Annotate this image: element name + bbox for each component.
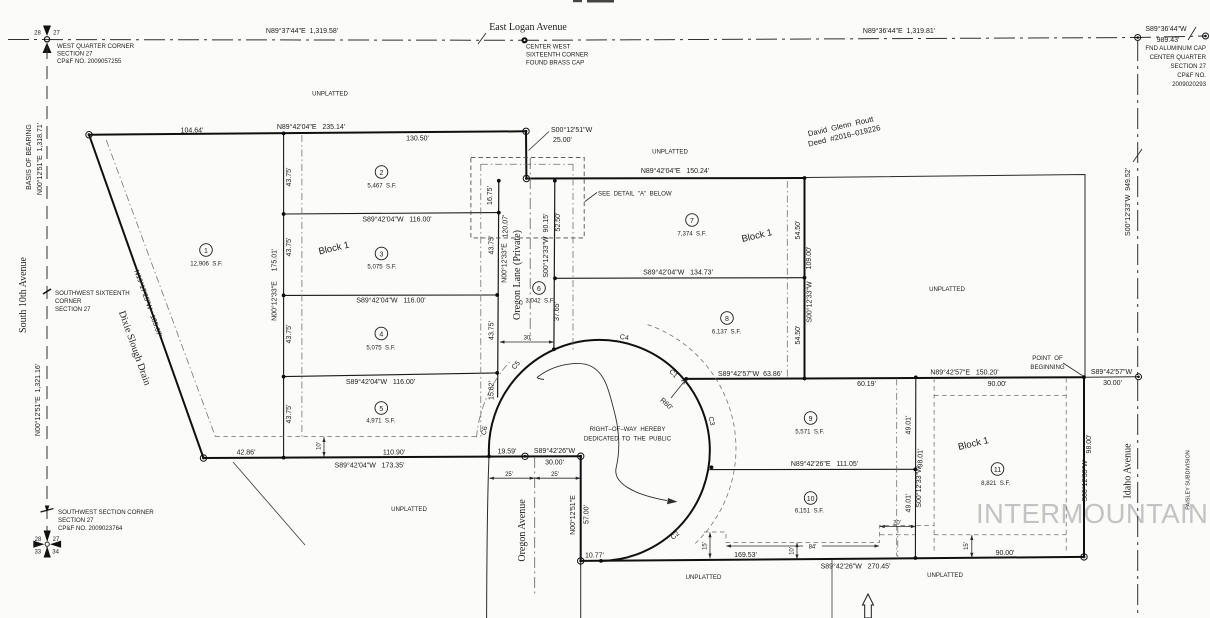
svg-text:25.00': 25.00' [553, 137, 572, 144]
svg-text:CENTER QUARTER: CENTER QUARTER [1150, 54, 1207, 61]
svg-text:CP&F NO. 2009057255: CP&F NO. 2009057255 [57, 58, 122, 65]
svg-text:7: 7 [690, 218, 694, 225]
svg-text:52.50': 52.50' [555, 213, 562, 232]
svg-text:30.00': 30.00' [545, 460, 564, 467]
svg-text:SECTION 27: SECTION 27 [55, 306, 91, 313]
svg-text:UNPLATTED: UNPLATTED [391, 506, 427, 513]
svg-text:27: 27 [53, 31, 60, 37]
svg-text:5,467 S.F.: 5,467 S.F. [367, 183, 396, 190]
svg-text:N00°12'51"E 1,318.71': N00°12'51"E 1,318.71' [36, 123, 44, 195]
svg-text:RIGHT–OF–WAY HEREBY: RIGHT–OF–WAY HEREBY [590, 426, 666, 433]
svg-text:15': 15' [703, 542, 709, 550]
svg-text:S89°42'04"W 116.00': S89°42'04"W 116.00' [356, 297, 425, 305]
svg-text:INTERMOUNTAIN: INTERMOUNTAIN [976, 498, 1208, 529]
svg-text:WEST QUARTER CORNER: WEST QUARTER CORNER [57, 43, 135, 50]
svg-text:54.50': 54.50' [795, 326, 802, 345]
svg-text:33: 33 [34, 550, 41, 556]
svg-text:43.75': 43.75' [489, 236, 496, 255]
svg-text:90.15': 90.15' [543, 214, 550, 233]
svg-text:BASIS OF BEARING: BASIS OF BEARING [26, 124, 33, 190]
svg-text:N00°12'33"E: N00°12'33"E [501, 243, 509, 283]
svg-text:C4: C4 [619, 334, 629, 342]
svg-text:120.07': 120.07' [503, 215, 510, 238]
svg-text:4: 4 [379, 331, 383, 338]
svg-text:130.50': 130.50' [406, 136, 429, 143]
svg-text:25': 25' [505, 472, 513, 478]
svg-text:S89°42'26"W 270.45': S89°42'26"W 270.45' [821, 563, 891, 571]
svg-text:4,971 S.F.: 4,971 S.F. [366, 418, 395, 425]
svg-text:84': 84' [809, 545, 817, 551]
svg-text:10': 10' [790, 547, 796, 555]
svg-text:43.75': 43.75' [286, 238, 293, 257]
svg-text:UNPLATTED: UNPLATTED [927, 572, 963, 579]
svg-text:10: 10 [807, 496, 815, 503]
svg-text:10': 10' [317, 442, 323, 450]
svg-text:CP&F NO.: CP&F NO. [1177, 72, 1206, 79]
svg-text:9: 9 [809, 416, 813, 423]
svg-text:34: 34 [52, 550, 59, 556]
svg-text:37.65': 37.65' [554, 302, 561, 321]
svg-text:S89°42'04"W 173.35': S89°42'04"W 173.35' [335, 462, 405, 470]
svg-text:S00°12'33"W: S00°12'33"W [542, 236, 550, 278]
svg-text:5,571 S.F.: 5,571 S.F. [795, 429, 824, 436]
svg-text:N89°37'44"E 1,319.58': N89°37'44"E 1,319.58' [266, 27, 338, 35]
svg-text:43.75': 43.75' [286, 325, 293, 344]
svg-text:N89°42'04"E 235.14': N89°42'04"E 235.14' [277, 123, 345, 131]
svg-text:Oregon Avenue: Oregon Avenue [517, 499, 528, 562]
svg-text:UNPLATTED: UNPLATTED [652, 149, 688, 156]
svg-text:90.00': 90.00' [988, 381, 1007, 388]
svg-text:6: 6 [537, 286, 541, 293]
svg-text:54.50': 54.50' [795, 221, 802, 240]
svg-text:S89°42'26"W: S89°42'26"W [534, 447, 576, 455]
svg-text:UNPLATTED: UNPLATTED [686, 574, 722, 581]
svg-text:S00°12'33"W: S00°12'33"W [806, 281, 814, 323]
svg-text:169.53': 169.53' [734, 552, 757, 559]
svg-text:25': 25' [551, 472, 559, 478]
svg-text:15.82': 15.82' [489, 381, 496, 400]
svg-text:7,374 S.F.: 7,374 S.F. [677, 231, 706, 238]
svg-text:43.75': 43.75' [286, 168, 293, 187]
svg-text:20': 20' [893, 521, 901, 527]
svg-text:1: 1 [204, 248, 208, 255]
svg-text:S00°12'33"W: S00°12'33"W [915, 466, 923, 508]
svg-text:S89°42'04"W 134.73': S89°42'04"W 134.73' [643, 269, 713, 277]
svg-text:DEDICATED TO THE PUBLIC: DEDICATED TO THE PUBLIC [584, 436, 672, 443]
svg-text:28: 28 [34, 31, 41, 37]
svg-text:SEE DETAIL "A" BELOW: SEE DETAIL "A" BELOW [598, 191, 672, 198]
svg-text:Idaho Avenue: Idaho Avenue [1123, 443, 1134, 499]
svg-text:3: 3 [380, 251, 384, 258]
svg-text:SECTION 27: SECTION 27 [58, 517, 94, 524]
svg-text:S00°12'33"W 949.52': S00°12'33"W 949.52' [1124, 168, 1132, 236]
svg-text:90.00': 90.00' [996, 550, 1015, 557]
svg-text:CORNER: CORNER [55, 298, 82, 305]
svg-text:2: 2 [380, 170, 384, 177]
svg-text:30': 30' [524, 336, 532, 342]
svg-text:60.19': 60.19' [857, 381, 876, 388]
svg-text:2009020293: 2009020293 [1172, 81, 1207, 88]
svg-text:S00°12'33"W: S00°12'33"W [1081, 460, 1089, 502]
svg-text:30.00': 30.00' [1103, 380, 1122, 387]
svg-text:S89°36'44"W: S89°36'44"W [1145, 25, 1187, 33]
svg-text:N89°42'26"E 111.05': N89°42'26"E 111.05' [791, 460, 858, 468]
svg-text:8: 8 [725, 316, 729, 323]
svg-text:27: 27 [53, 537, 60, 543]
svg-text:3,042 S.F.: 3,042 S.F. [525, 298, 554, 305]
svg-text:19.59': 19.59' [498, 449, 517, 456]
svg-text:SIXTEENTH CORNER: SIXTEENTH CORNER [526, 52, 589, 59]
svg-text:6,137 S.F.: 6,137 S.F. [712, 329, 741, 336]
svg-text:10.77': 10.77' [585, 553, 604, 560]
svg-text:CENTER WEST: CENTER WEST [526, 44, 571, 51]
svg-text:43.75': 43.75' [489, 321, 496, 340]
svg-text:8,821 S.F.: 8,821 S.F. [981, 480, 1010, 487]
svg-text:5,075 S.F.: 5,075 S.F. [366, 345, 395, 352]
svg-text:SOUTHWEST SECTION CORNER: SOUTHWEST SECTION CORNER [58, 509, 154, 516]
svg-text:FOUND BRASS CAP: FOUND BRASS CAP [526, 60, 584, 67]
svg-text:12,906 S.F.: 12,906 S.F. [190, 261, 223, 268]
svg-text:49.01': 49.01' [906, 494, 913, 513]
svg-text:98.00': 98.00' [1086, 435, 1093, 454]
svg-text:POINT OF: POINT OF [1032, 355, 1063, 362]
svg-text:SECTION 27: SECTION 27 [1170, 63, 1206, 70]
svg-text:UNPLATTED: UNPLATTED [312, 91, 348, 98]
svg-text:109.00': 109.00' [806, 247, 813, 270]
svg-text:Oregon Lane (Private): Oregon Lane (Private) [512, 230, 523, 320]
svg-text:6,151 S.F.: 6,151 S.F. [795, 508, 824, 515]
svg-text:N00°12'33"E: N00°12'33"E [271, 281, 279, 321]
svg-text:43.75': 43.75' [286, 405, 293, 424]
svg-text:S89°42'57"W: S89°42'57"W [1091, 368, 1133, 376]
svg-text:57.00': 57.00' [584, 505, 591, 524]
svg-text:N89°36'44"E 1,319.81': N89°36'44"E 1,319.81' [863, 27, 935, 35]
svg-text:FND ALUMINUM CAP: FND ALUMINUM CAP [1145, 45, 1206, 52]
svg-text:N89°42'04"E 150.24': N89°42'04"E 150.24' [641, 167, 709, 175]
svg-text:S00°12'51"W: S00°12'51"W [551, 126, 593, 134]
svg-text:11: 11 [994, 467, 1001, 474]
svg-text:CP&F NO. 2009023764: CP&F NO. 2009023764 [58, 525, 123, 532]
svg-text:98.01': 98.01' [918, 449, 925, 468]
svg-text:S89°42'04"W 116.00': S89°42'04"W 116.00' [346, 378, 415, 386]
svg-text:989.43': 989.43' [1157, 37, 1180, 44]
svg-text:SOUTHWEST SIXTEENTH: SOUTHWEST SIXTEENTH [55, 290, 130, 297]
svg-text:49.01': 49.01' [906, 416, 913, 435]
svg-text:175.01': 175.01' [272, 249, 279, 272]
svg-text:5: 5 [379, 406, 383, 413]
svg-text:South 10th Avenue: South 10th Avenue [18, 256, 29, 332]
svg-text:N89°42'57"E 150.20': N89°42'57"E 150.20' [930, 369, 998, 377]
svg-text:S89°42'57"W 63.86': S89°42'57"W 63.86' [718, 370, 782, 378]
svg-text:BEGINNING: BEGINNING [1030, 364, 1064, 371]
svg-text:110.90': 110.90' [383, 450, 405, 457]
svg-text:5,075 S.F.: 5,075 S.F. [367, 264, 396, 271]
svg-text:104.64': 104.64' [181, 128, 204, 135]
svg-text:N00°12'51"E 1,321.16': N00°12'51"E 1,321.16' [34, 364, 42, 436]
svg-text:UNPLATTED: UNPLATTED [929, 286, 965, 293]
svg-text:42.86': 42.86' [237, 450, 256, 457]
svg-text:28: 28 [35, 537, 42, 543]
svg-text:N00°12'51"E: N00°12'51"E [569, 495, 577, 535]
svg-text:SECTION 27: SECTION 27 [57, 51, 93, 58]
svg-text:S89°42'04"W 116.00': S89°42'04"W 116.00' [362, 216, 431, 224]
svg-text:East Logan Avenue: East Logan Avenue [489, 22, 567, 33]
svg-text:PAISLEY SUBDIVISION: PAISLEY SUBDIVISION [1186, 450, 1192, 509]
svg-text:15': 15' [964, 542, 970, 550]
svg-text:16.75': 16.75' [487, 186, 494, 205]
